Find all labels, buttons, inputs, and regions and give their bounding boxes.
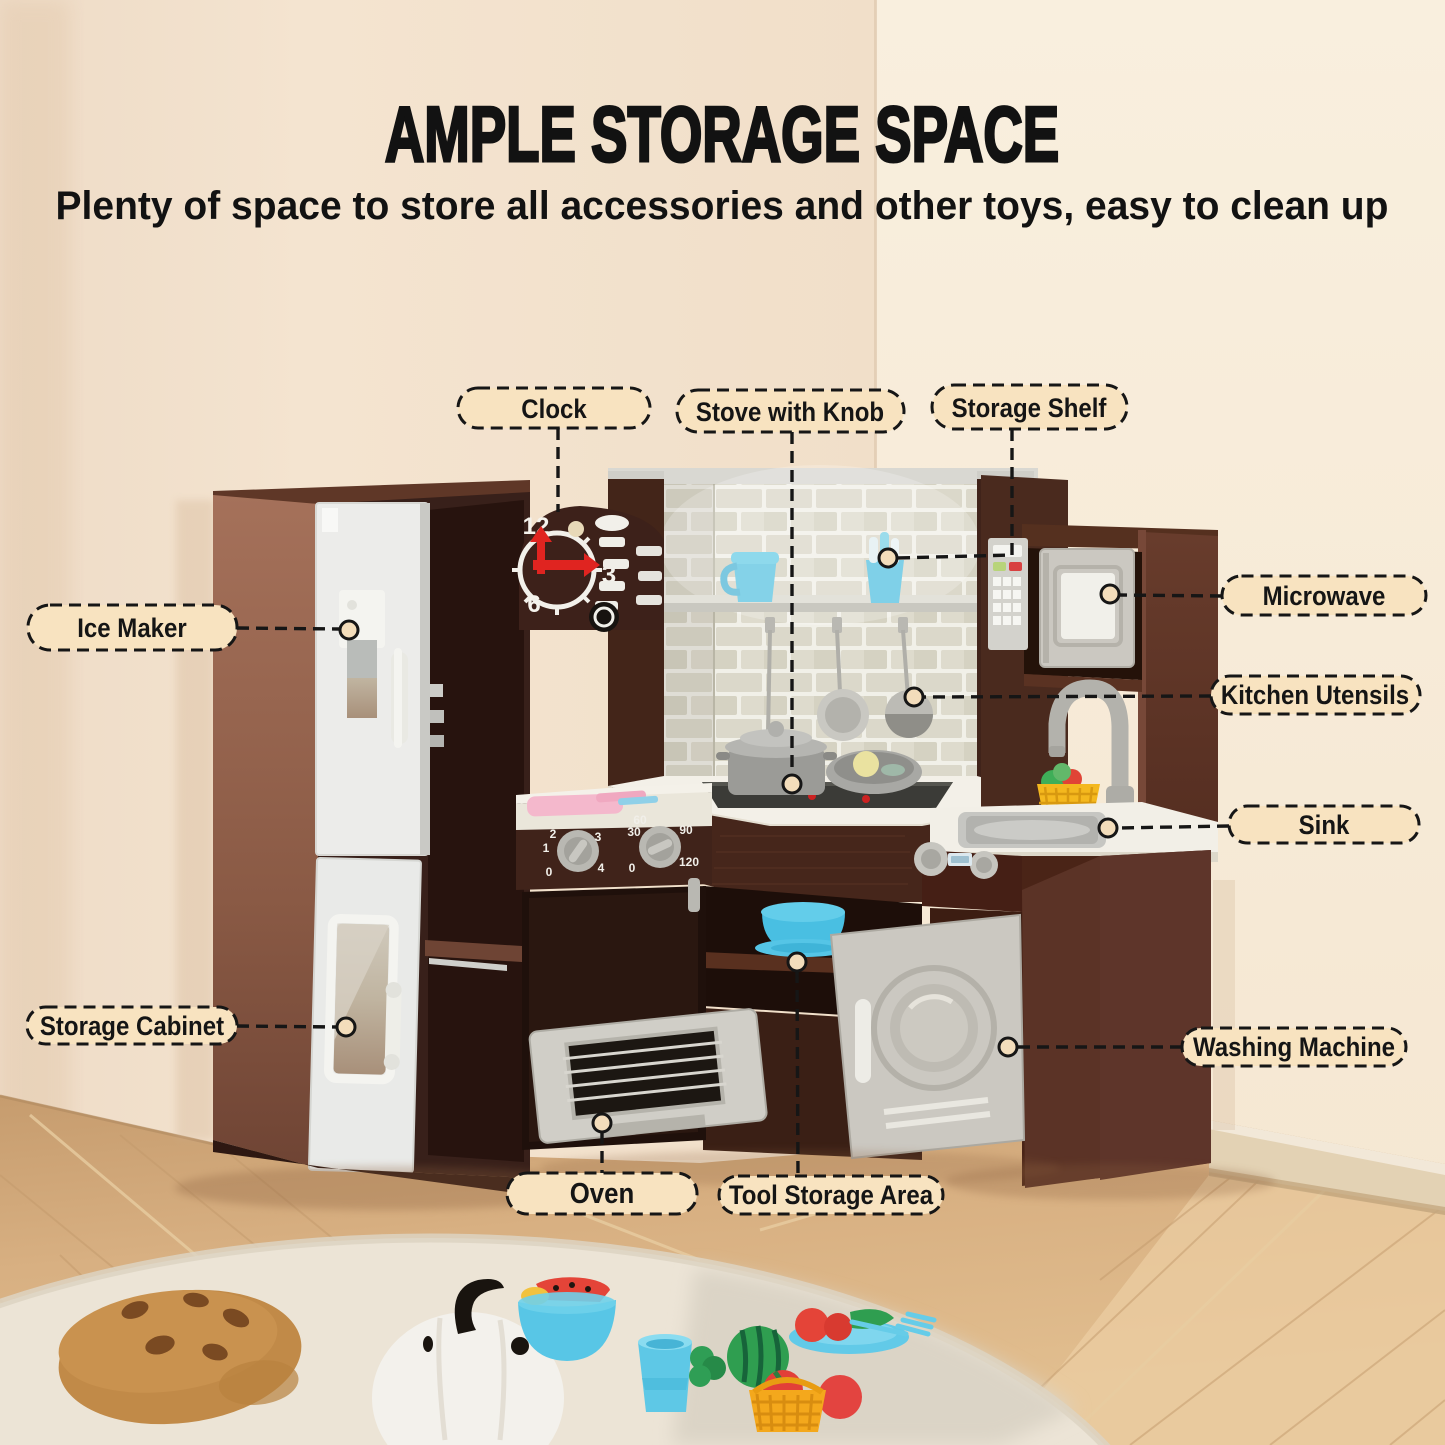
svg-text:Oven: Oven (570, 1177, 635, 1210)
svg-text:6: 6 (527, 591, 540, 618)
svg-text:Clock: Clock (521, 395, 587, 425)
svg-text:Tool Storage Area: Tool Storage Area (729, 1181, 934, 1211)
svg-text:2: 2 (550, 827, 557, 841)
svg-text:Kitchen Utensils: Kitchen Utensils (1221, 681, 1409, 711)
svg-text:0: 0 (546, 865, 553, 879)
svg-text:Sink: Sink (1299, 811, 1350, 841)
svg-text:0: 0 (629, 861, 636, 875)
svg-text:AMPLE STORAGE SPACE: AMPLE STORAGE SPACE (385, 91, 1059, 178)
svg-text:Washing Machine: Washing Machine (1193, 1033, 1395, 1063)
svg-text:3: 3 (595, 830, 602, 844)
svg-text:90: 90 (679, 823, 693, 837)
svg-text:4: 4 (598, 861, 605, 875)
svg-text:Microwave: Microwave (1263, 582, 1386, 612)
svg-text:Storage Shelf: Storage Shelf (952, 394, 1107, 424)
svg-text:120: 120 (679, 855, 699, 869)
svg-text:30: 30 (627, 825, 641, 839)
svg-text:Storage Cabinet: Storage Cabinet (40, 1012, 225, 1042)
svg-text:Ice Maker: Ice Maker (77, 614, 187, 644)
svg-text:Plenty of space to store all a: Plenty of space to store all accessories… (56, 184, 1389, 229)
svg-text:1: 1 (543, 841, 550, 855)
svg-text:60: 60 (633, 813, 647, 827)
svg-text:Stove with Knob: Stove with Knob (696, 398, 884, 428)
